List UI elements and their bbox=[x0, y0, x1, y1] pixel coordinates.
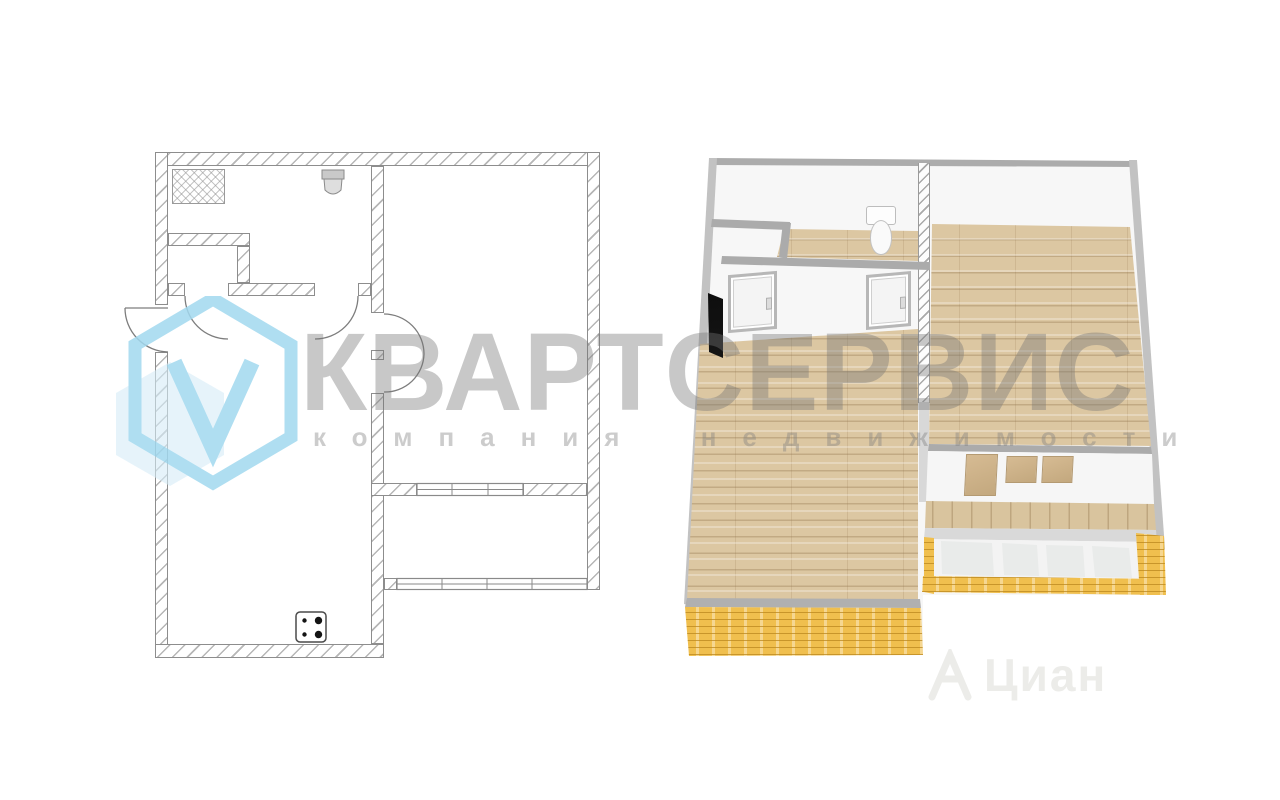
living-balcony-window bbox=[417, 484, 523, 496]
2d-plan-details bbox=[110, 152, 600, 658]
entrance-door-arc bbox=[125, 308, 168, 352]
door-panel-right bbox=[866, 271, 911, 330]
floor-plan-poster: КВАРТСЕРВИС компания недвижимости Циан bbox=[0, 0, 1280, 800]
door-knob bbox=[900, 297, 906, 310]
3d-floor-plan bbox=[680, 158, 1166, 663]
balcony-cabinet-small bbox=[1041, 456, 1073, 483]
living-double-door-arc-top bbox=[384, 314, 424, 354]
cian-label: Циан bbox=[984, 648, 1107, 702]
toilet-icon-2d bbox=[322, 170, 344, 194]
divider-wall-cut bbox=[918, 163, 930, 403]
door-knob bbox=[766, 298, 772, 311]
cian-logo-icon bbox=[926, 649, 974, 701]
toilet-icon-3d bbox=[866, 206, 896, 256]
balcony-cabinet-large bbox=[964, 454, 998, 496]
2d-floor-plan bbox=[155, 152, 600, 658]
cian-watermark: Циан bbox=[926, 648, 1107, 702]
door-panel-left bbox=[728, 271, 777, 333]
stove-icon bbox=[296, 612, 326, 642]
living-double-door-arc-bottom bbox=[384, 354, 424, 392]
kitchen-door-arc bbox=[315, 296, 358, 339]
balcony-cabinet-mid bbox=[1005, 456, 1037, 483]
balcony-outer-window bbox=[397, 579, 587, 590]
hall-door-arc bbox=[185, 296, 228, 339]
